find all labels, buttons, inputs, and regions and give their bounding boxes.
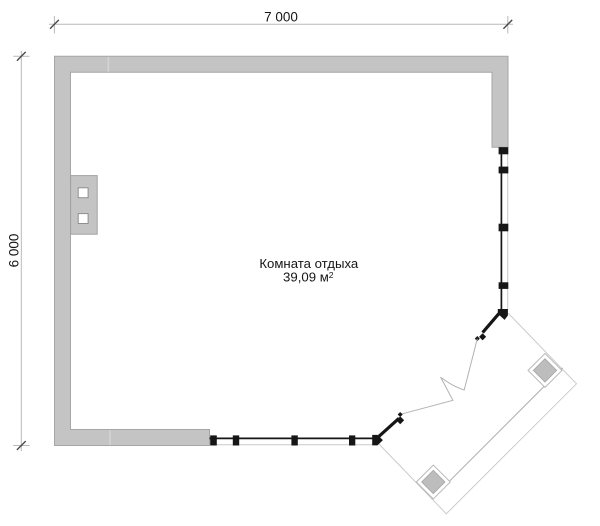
svg-text:39,09 м2: 39,09 м2 <box>283 270 334 285</box>
svg-text:6 000: 6 000 <box>7 234 22 268</box>
svg-text:7 000: 7 000 <box>264 9 298 24</box>
